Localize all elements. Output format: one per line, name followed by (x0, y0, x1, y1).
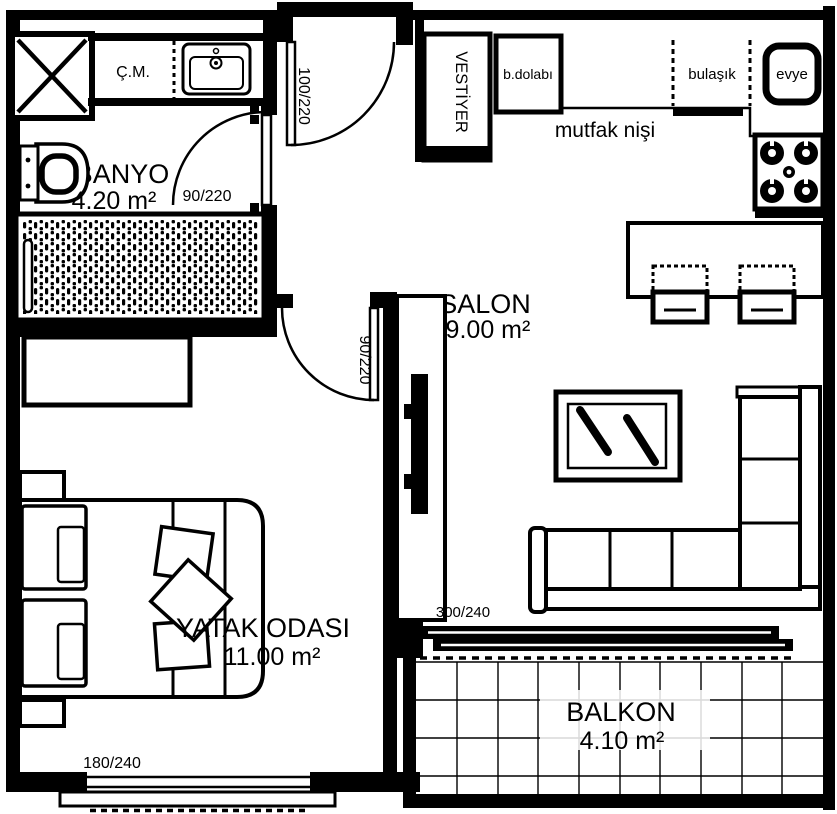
bedroom-top-wall-left (277, 294, 293, 308)
nightstand (20, 700, 64, 726)
entrance-jamb-right (396, 2, 413, 45)
bath-door-tick (250, 115, 259, 124)
balcony: BALKON 4.10 m² (416, 662, 823, 794)
bathtub-texture (22, 220, 258, 314)
drain-dot (214, 61, 218, 65)
sofa-armrest (530, 528, 546, 612)
balcony-door-dim: 300/240 (436, 604, 490, 621)
entrance-lintel (277, 2, 413, 17)
stove-base-line (755, 211, 823, 218)
bathtub-grab-bar (24, 240, 32, 312)
entrance-door-dim: 100/220 (295, 67, 312, 125)
bedroom-door-dim: 90/220 (356, 336, 373, 385)
hall: VESTİYER (424, 34, 490, 160)
washing-machine-label: Ç.M. (116, 64, 150, 81)
nightstand (20, 472, 64, 500)
bedroom-window-dim: 180/240 (83, 755, 141, 772)
bedroom-bottom-wall-left (6, 772, 87, 792)
balcony-sliding-door (420, 626, 793, 658)
bedroom-window (60, 772, 335, 811)
kitchen-niche-label: mutfak nişi (555, 119, 655, 142)
vanity-counter-bottom-edge (88, 98, 263, 106)
right-wall (823, 6, 835, 810)
kitchen: b.dolabı bulaşık evye mutfak nişi (496, 36, 823, 322)
bedroom-area: 11.00 m² (224, 643, 321, 671)
floor-plan: Ç.M. BANYO 4.20 m² 90/220 100/220 90/220… (0, 0, 837, 814)
bathroom-door-leaf (262, 115, 271, 205)
bedroom: YATAK ODASI 11.00 m² 180/240 (20, 337, 350, 811)
closet-label: VESTİYER (452, 51, 471, 133)
tv-mount (404, 404, 412, 419)
toilet-bolt (26, 158, 31, 163)
top-wall-right (396, 10, 835, 20)
living-room: SALON 19.00 m² 300/240 (397, 289, 820, 658)
left-wall (6, 10, 20, 790)
toilet-bolt (26, 184, 31, 189)
pillow (22, 600, 86, 686)
toilet-tank (20, 146, 38, 200)
bar-stool (653, 266, 707, 322)
tv-icon (411, 374, 428, 514)
balcony-name: BALKON (566, 697, 676, 727)
balcony-parapet-bottom (403, 794, 835, 808)
niche-wall-mark (673, 108, 743, 116)
faucet-icon (214, 49, 219, 54)
tv-mount (404, 474, 412, 489)
living-room-name: SALON (439, 289, 531, 319)
bedroom-right-wall (383, 294, 397, 772)
pillow (22, 506, 86, 589)
closet-base (424, 146, 490, 160)
top-wall-left (6, 10, 293, 20)
bath-door-tick (250, 203, 259, 212)
bathroom-wall-upper (263, 20, 277, 115)
fridge-label: b.dolabı (503, 66, 553, 82)
wardrobe (24, 337, 190, 405)
entrance-door-leaf (287, 42, 295, 145)
bathroom-area: 4.20 m² (72, 187, 157, 215)
floor-plan-drawing: Ç.M. BANYO 4.20 m² 90/220 100/220 90/220… (0, 0, 837, 814)
balcony-area: 4.10 m² (580, 727, 665, 755)
dishwasher-label: bulaşık (688, 66, 736, 83)
bar-stool (740, 266, 794, 322)
entrance-jamb-left (277, 2, 293, 42)
bathroom-door-dim: 90/220 (183, 188, 232, 205)
window-sill (60, 792, 335, 806)
vanity-counter-top-edge (88, 33, 263, 41)
bathroom: Ç.M. BANYO 4.20 m² 90/220 (12, 33, 264, 320)
bedroom-name: YATAK ODASI (176, 613, 350, 643)
kitchen-sink-label: evye (776, 66, 808, 83)
balcony-parapet-left (403, 648, 416, 808)
